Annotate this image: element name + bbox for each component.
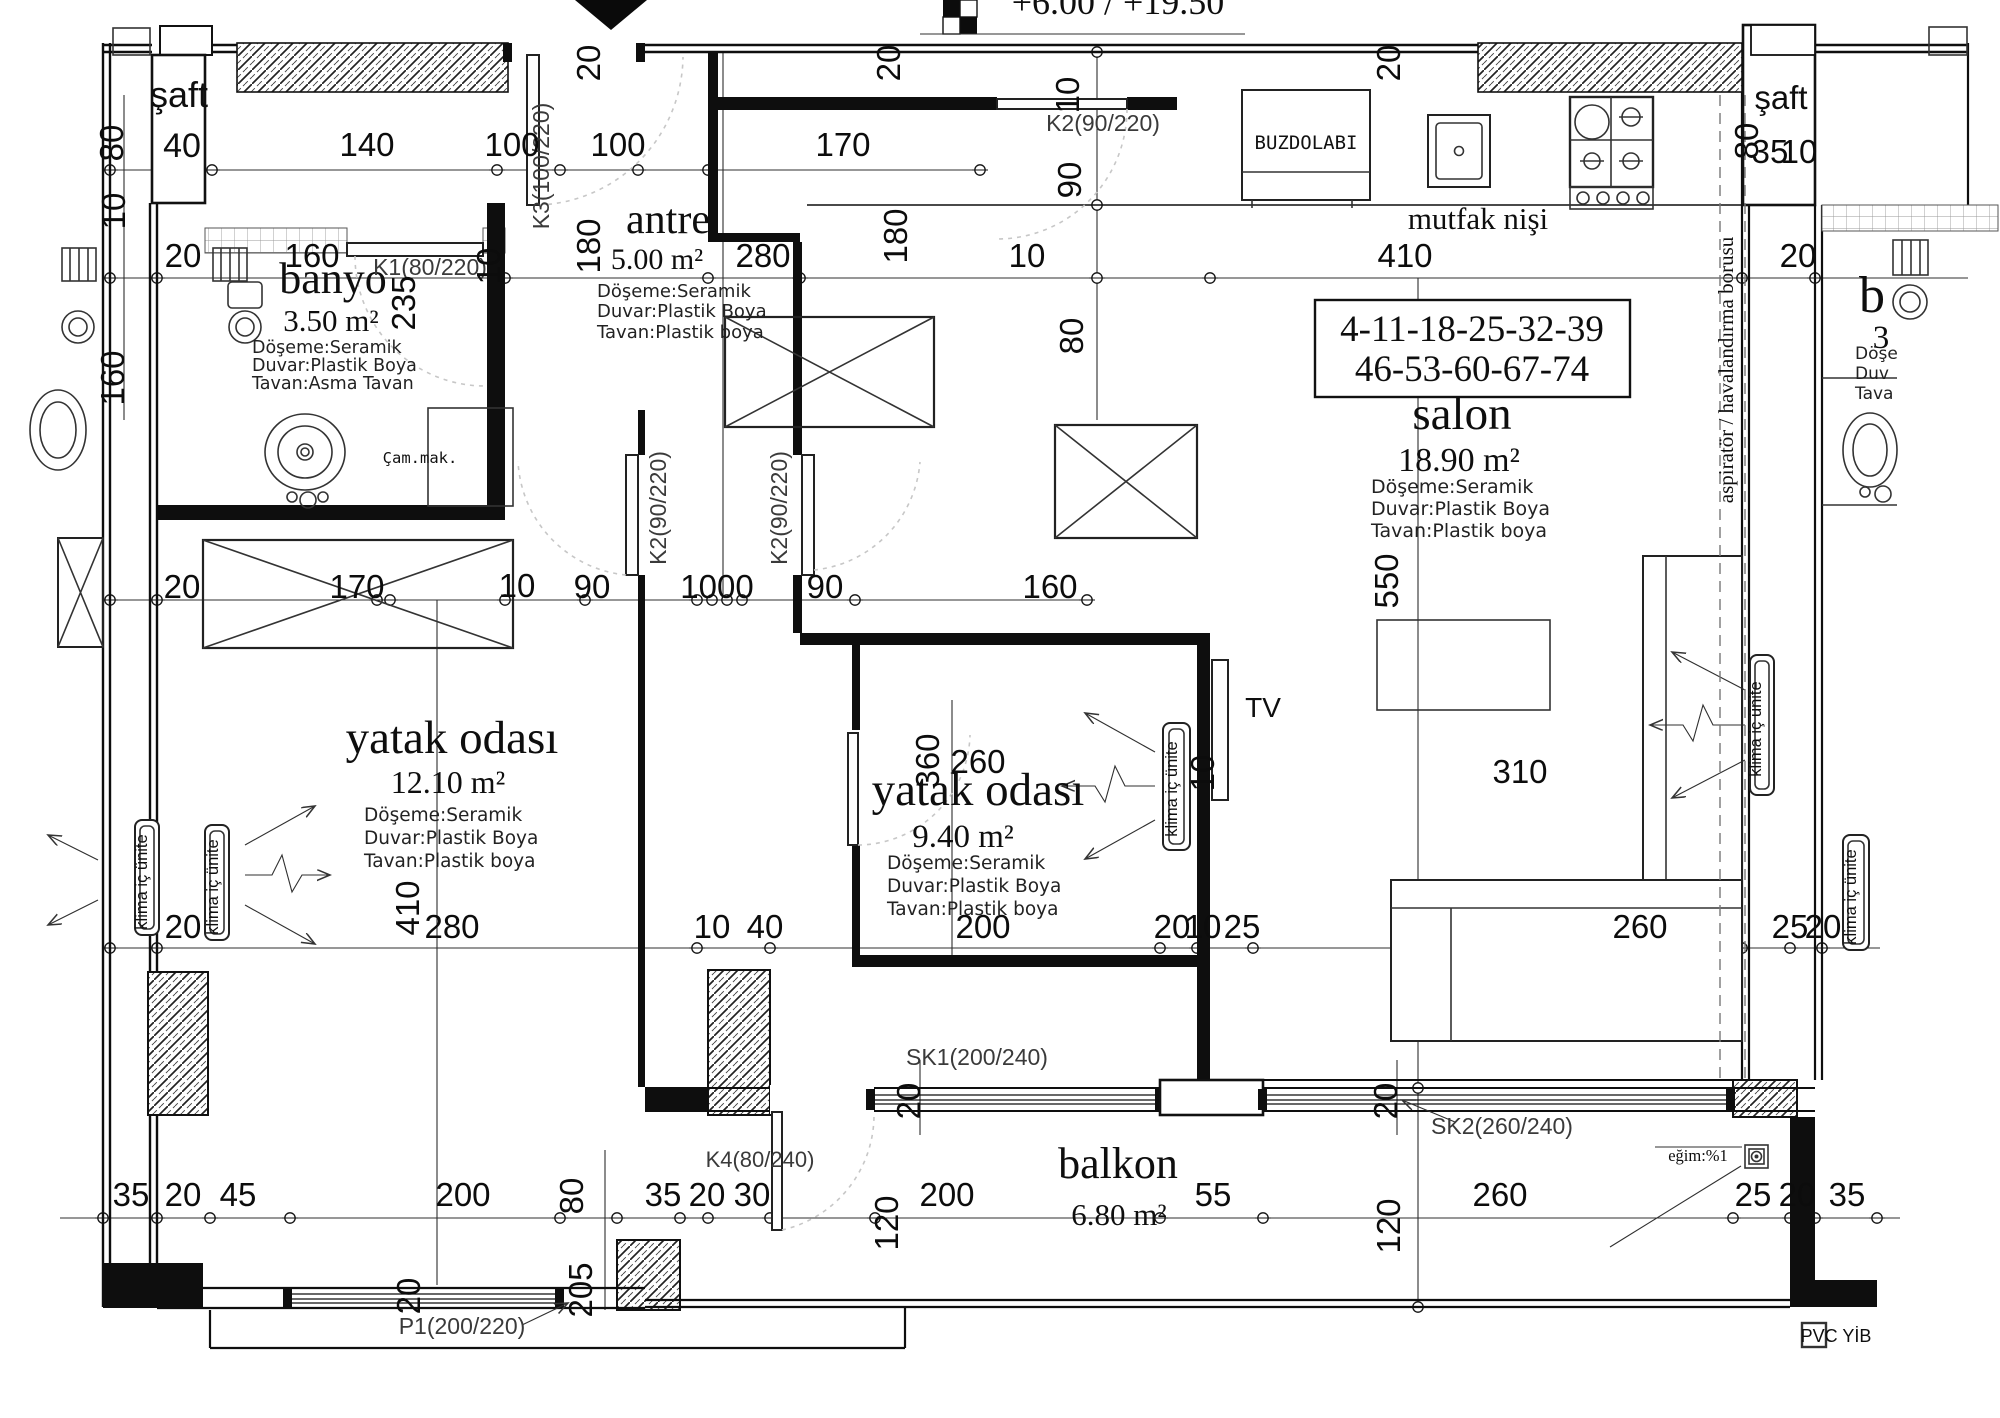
window-sk2-label: SK2(260/240) <box>1431 1113 1573 1139</box>
dim: 170 <box>815 126 870 163</box>
pvc-label: PVC YİB <box>1801 1326 1872 1346</box>
dim: 140 <box>339 126 394 163</box>
dim: 20 <box>165 1176 202 1213</box>
dim: 20 <box>1780 237 1817 274</box>
antre-floor: Döşeme:Seramik <box>597 281 751 302</box>
banyo-floor: Döşeme:Seramik <box>252 338 402 358</box>
dim: 180 <box>570 218 607 273</box>
dim: 205 <box>562 1262 599 1317</box>
salon-ceiling: Tavan:Plastik boya <box>1370 520 1547 542</box>
banyo-wall: Duvar:Plastik Boya <box>252 356 417 376</box>
dim: 20 <box>164 568 201 605</box>
bedroom1-door-leaf <box>626 455 638 575</box>
vent-duct-label: aspiratör / havalandırma borusu <box>1714 236 1738 503</box>
banyo-ceiling: Tavan:Asma Tavan <box>251 374 414 394</box>
dim: 20 <box>689 1176 726 1213</box>
dim: 45 <box>220 1176 257 1213</box>
dim: 200 <box>955 908 1010 945</box>
dim: 10 <box>499 567 536 604</box>
window-p1-label: P1(200/220) <box>399 1313 526 1339</box>
dim: 35 <box>1829 1176 1866 1213</box>
dim: 410 <box>389 880 426 935</box>
dim: 30 <box>734 1176 771 1213</box>
slope-label: eğim:%1 <box>1668 1146 1728 1165</box>
dim: 10 <box>1009 237 1046 274</box>
dim: 160 <box>284 237 339 274</box>
stove <box>1570 97 1653 209</box>
dim: 550 <box>1368 553 1405 608</box>
dining-table <box>1377 620 1550 710</box>
neighbor-left-bathroom <box>30 248 103 647</box>
dim: 280 <box>424 908 479 945</box>
sofa <box>1391 556 1742 1041</box>
dim: 280 <box>735 237 790 274</box>
klima-label-3: klima iç ünite <box>1163 741 1181 836</box>
room-salon-area: 18.90 m² <box>1398 442 1520 479</box>
dim: 260 <box>950 743 1005 780</box>
dim: 40 <box>747 908 784 945</box>
dim: 25 <box>1735 1176 1772 1213</box>
saft-right-dim-10: 10 <box>1781 133 1818 170</box>
dim: 170 <box>329 568 384 605</box>
dim: 360 <box>909 733 946 788</box>
room-yatak1: yatak odası <box>346 712 559 764</box>
dim: 10 <box>694 908 731 945</box>
entry-arrow <box>575 0 647 30</box>
washing-machine-label: Çam.mak. <box>383 449 458 467</box>
dim: 90 <box>807 568 844 605</box>
yatak1-floor: Döşeme:Seramik <box>364 805 522 826</box>
dim: 80 <box>93 125 130 162</box>
room-saft-left: şaft <box>150 74 208 115</box>
dim: 100 <box>484 126 539 163</box>
neighbor-room-partial: b <box>1859 267 1885 324</box>
klima-label-4: klima iç ünite <box>1747 681 1765 776</box>
dim: 90 <box>1051 162 1088 199</box>
dim: 180 <box>877 208 914 263</box>
dim: 160 <box>1022 568 1077 605</box>
dim: 410 <box>1377 237 1432 274</box>
tv-label: TV <box>1245 692 1281 723</box>
yatak1-ceiling: Tavan:Plastik boya <box>363 851 535 872</box>
dim: 55 <box>1195 1176 1232 1213</box>
dim: 20 <box>1367 1083 1404 1120</box>
dim: 120 <box>1370 1198 1407 1253</box>
dim: 20 <box>1370 45 1407 82</box>
dim: 20 <box>165 237 202 274</box>
banyo-toilet <box>213 248 262 343</box>
dim: 10 <box>1185 908 1222 945</box>
dim: 20 <box>870 45 907 82</box>
room-yatak1-area: 12.10 m² <box>391 764 505 800</box>
salon-floor: Döşeme:Seramik <box>1371 476 1533 498</box>
dim: 260 <box>1472 1176 1527 1213</box>
klima-label-1: klima iç ünite <box>133 834 151 929</box>
dim: 90 <box>574 568 611 605</box>
floor-plan-drawing: +6.00 / +19.50 4-11-18-25-32-39 46-53-60… <box>0 0 2000 1413</box>
room-balkon-area: 6.80 m² <box>1071 1197 1166 1232</box>
saft-left-dim: 40 <box>163 127 201 165</box>
room-antre: antre <box>626 197 710 243</box>
dim: 260 <box>1612 908 1667 945</box>
salon-wall: Duvar:Plastik Boya <box>1371 498 1550 520</box>
hatched-wall-top-left <box>237 43 508 92</box>
antre-ceiling: Tavan:Plastik boya <box>596 322 764 343</box>
room-antre-area: 5.00 m² <box>611 243 703 276</box>
room-balkon: balkon <box>1058 1139 1178 1188</box>
yatak2-floor: Döşeme:Seramik <box>887 853 1045 874</box>
room-salon: salon <box>1412 388 1511 440</box>
room-mutfak: mutfak nişi <box>1408 201 1549 236</box>
door-k4-label: K4(80/240) <box>706 1147 815 1172</box>
unit-numbers-line1: 4-11-18-25-32-39 <box>1340 309 1604 350</box>
dim: 10 <box>1184 755 1221 792</box>
dim: 20 <box>570 45 607 82</box>
antre-wall: Duvar:Plastik Boya <box>597 301 767 322</box>
floor-plan-page: +6.00 / +19.50 4-11-18-25-32-39 46-53-60… <box>0 0 2000 1413</box>
window-sk1-label: SK1(200/240) <box>906 1044 1048 1070</box>
door-k2-bedroom1-label: K2(90/220) <box>645 451 671 565</box>
door-k2-bedroom2-label: K2(90/220) <box>766 451 792 565</box>
tv-unit-cabinet <box>1055 425 1197 538</box>
room-yatak2-area: 9.40 m² <box>912 819 1014 855</box>
hatched-wall-top-right <box>1478 43 1742 92</box>
yatak1-wall: Duvar:Plastik Boya <box>364 828 538 849</box>
dim: 10 <box>470 248 507 285</box>
neighbor-ceiling-partial: Tava <box>1854 384 1893 404</box>
hall-door-leaf <box>802 455 814 575</box>
dim: 160 <box>94 350 131 405</box>
unit-numbers-line2: 46-53-60-67-74 <box>1355 349 1589 390</box>
dim: 20 <box>1805 908 1842 945</box>
banyo-sink <box>265 414 345 508</box>
dim: 235 <box>385 275 422 330</box>
dim: 1000 <box>680 568 753 605</box>
door-k3-label: K3(100/220) <box>528 103 554 230</box>
dim: 20 <box>390 1278 427 1315</box>
dim: 10 <box>1049 77 1086 114</box>
dim: 25 <box>1224 908 1261 945</box>
dim: 200 <box>919 1176 974 1213</box>
dim: 35 <box>645 1176 682 1213</box>
dim: 35 <box>113 1176 150 1213</box>
neighbor-floor-partial: Döşe <box>1855 344 1898 364</box>
dim: 10 <box>95 193 132 230</box>
dim: 200 <box>435 1176 490 1213</box>
dim: 100 <box>590 126 645 163</box>
room-banyo-area: 3.50 m² <box>283 303 378 338</box>
dim: 20 <box>1779 1176 1816 1213</box>
neighbor-wall-partial: Duv <box>1855 364 1889 384</box>
dim: 80 <box>553 1178 590 1215</box>
kitchen-sink <box>1428 115 1490 187</box>
dim: 80 <box>1053 318 1090 355</box>
elevation-text: +6.00 / +19.50 <box>1012 0 1225 22</box>
dim: 25 <box>1772 908 1809 945</box>
klima-label-5: klima iç ünite <box>1842 849 1860 944</box>
fridge-label: BUZDOLABI <box>1255 132 1358 154</box>
bedroom2-door-leaf <box>848 733 858 845</box>
hatched-pier-left <box>148 972 208 1115</box>
room-saft-right: şaft <box>1754 79 1807 116</box>
dim: 20 <box>165 908 202 945</box>
yatak2-wall: Duvar:Plastik Boya <box>887 876 1061 897</box>
dim: 20 <box>890 1083 927 1120</box>
hatched-pier-balcony <box>708 970 770 1115</box>
dim: 310 <box>1492 753 1547 790</box>
klima-label-2: klima iç ünite <box>204 839 222 934</box>
dim: 120 <box>868 1195 905 1250</box>
